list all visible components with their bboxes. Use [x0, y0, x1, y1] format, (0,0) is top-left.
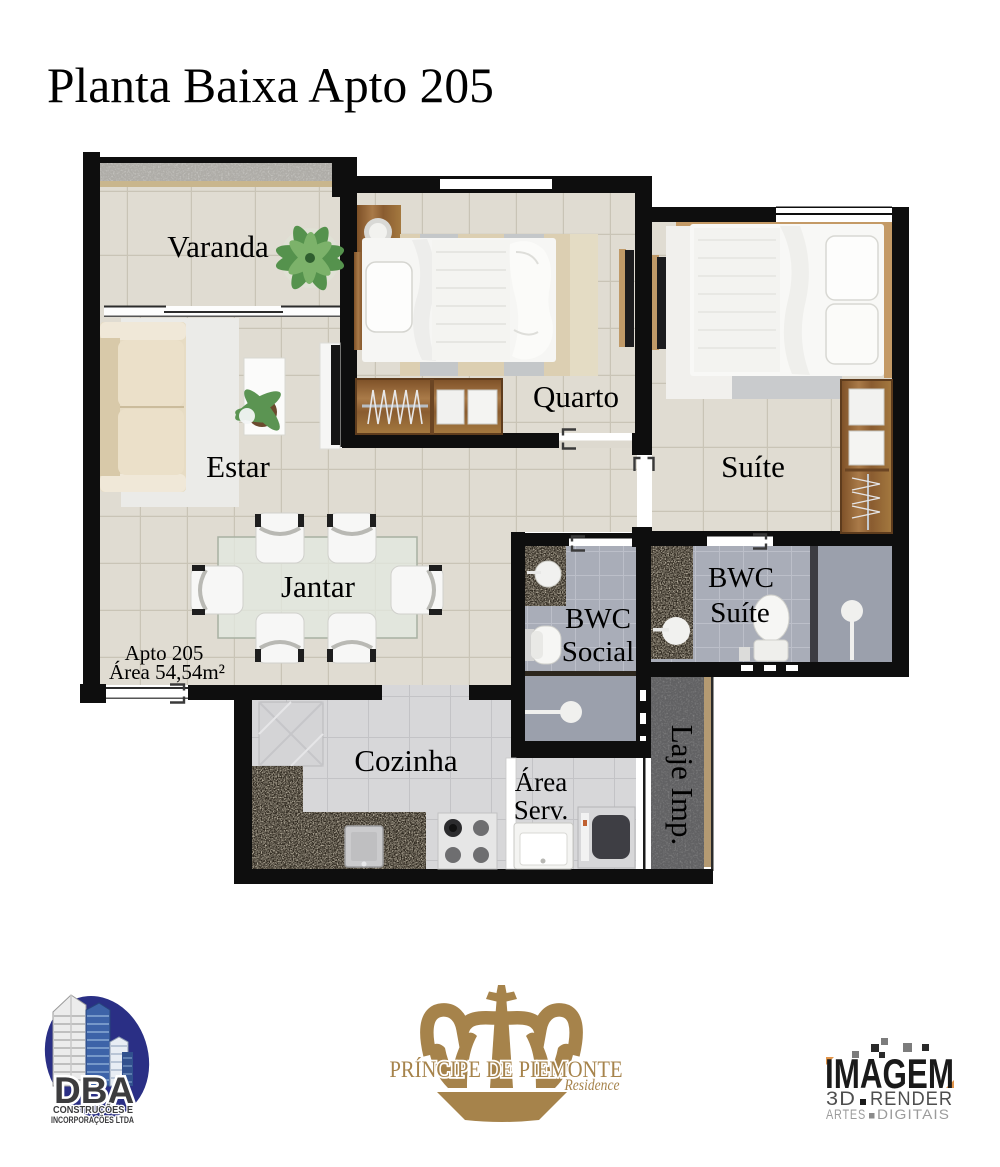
svg-text:Cozinha: Cozinha — [354, 743, 458, 778]
svg-text:Estar: Estar — [206, 449, 270, 484]
svg-text:Área: Área — [515, 767, 567, 797]
svg-text:BWC: BWC — [708, 562, 774, 594]
svg-text:BWC: BWC — [565, 603, 631, 635]
svg-text:Laje Imp.: Laje Imp. — [665, 725, 700, 846]
svg-text:Planta Baixa Apto 205: Planta Baixa Apto 205 — [47, 58, 494, 113]
svg-text:Residence: Residence — [564, 1077, 620, 1094]
svg-text:Varanda: Varanda — [167, 229, 269, 264]
svg-text:ARTES: ARTES — [826, 1106, 866, 1122]
svg-text:INCORPORAÇÕES LTDA: INCORPORAÇÕES LTDA — [51, 1115, 134, 1125]
svg-text:Área 54,54m²: Área 54,54m² — [109, 660, 225, 684]
svg-text:Suíte: Suíte — [721, 449, 785, 484]
svg-text:DIGITAIS: DIGITAIS — [877, 1106, 950, 1122]
svg-text:Social: Social — [562, 636, 635, 668]
svg-text:Jantar: Jantar — [281, 569, 356, 604]
svg-text:Quarto: Quarto — [533, 379, 619, 414]
svg-text:Suíte: Suíte — [710, 597, 770, 629]
svg-text:Serv.: Serv. — [514, 795, 569, 825]
